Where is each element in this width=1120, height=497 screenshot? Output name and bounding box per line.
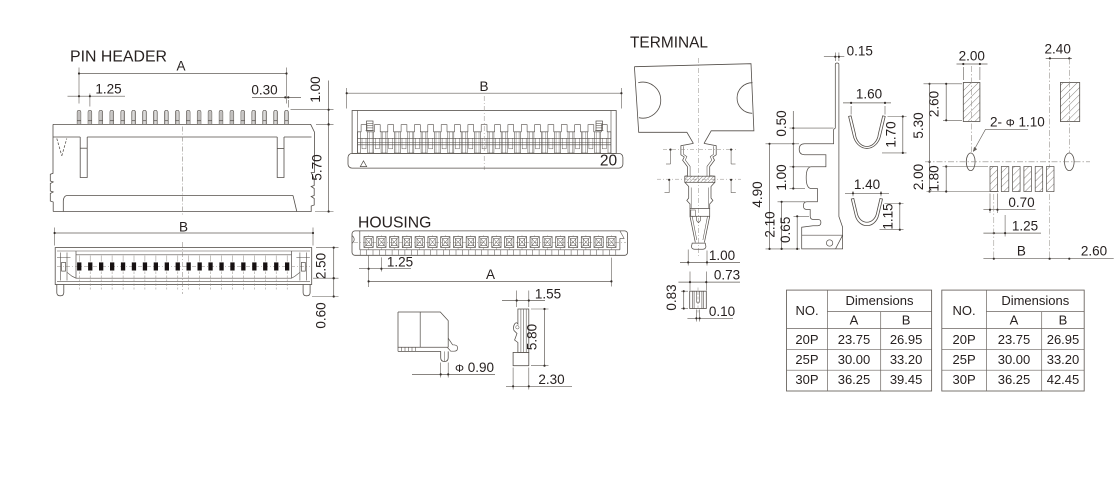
- svg-text:5.30: 5.30: [911, 112, 926, 138]
- svg-text:2.40: 2.40: [1045, 42, 1071, 57]
- svg-text:Dimensions: Dimensions: [846, 293, 914, 308]
- svg-text:HOUSING: HOUSING: [358, 215, 431, 232]
- svg-text:1.25: 1.25: [387, 255, 413, 270]
- svg-text:1.80: 1.80: [926, 165, 941, 191]
- svg-text:25P: 25P: [953, 352, 976, 367]
- svg-text:1.00: 1.00: [709, 248, 735, 263]
- svg-text:20P: 20P: [795, 332, 818, 347]
- svg-text:1.70: 1.70: [883, 121, 898, 147]
- svg-text:36.25: 36.25: [838, 372, 871, 387]
- svg-text:NO.: NO.: [953, 303, 976, 318]
- svg-text:23.75: 23.75: [838, 332, 871, 347]
- svg-text:2.60: 2.60: [1081, 244, 1107, 259]
- svg-text:1.25: 1.25: [1012, 219, 1038, 234]
- svg-text:2.00: 2.00: [911, 164, 926, 190]
- svg-text:30.00: 30.00: [998, 352, 1031, 367]
- svg-text:A: A: [850, 313, 859, 328]
- svg-text:1.60: 1.60: [856, 86, 882, 101]
- svg-text:2.50: 2.50: [314, 253, 329, 279]
- svg-text:NO.: NO.: [795, 303, 818, 318]
- svg-text:0.10: 0.10: [709, 304, 735, 319]
- svg-text:39.45: 39.45: [890, 372, 923, 387]
- svg-text:2.30: 2.30: [538, 372, 564, 387]
- svg-text:Φ 0.90: Φ 0.90: [455, 360, 494, 375]
- svg-text:2.10: 2.10: [763, 211, 778, 237]
- svg-text:B: B: [1059, 313, 1068, 328]
- svg-text:36.25: 36.25: [998, 372, 1031, 387]
- svg-text:5.70: 5.70: [310, 154, 325, 180]
- svg-text:26.95: 26.95: [890, 332, 923, 347]
- svg-text:B: B: [1017, 244, 1026, 259]
- svg-text:A: A: [176, 59, 185, 74]
- svg-text:1.25: 1.25: [95, 82, 121, 97]
- svg-text:0.83: 0.83: [664, 284, 679, 310]
- svg-text:B: B: [179, 220, 188, 235]
- svg-text:PIN HEADER: PIN HEADER: [70, 49, 167, 66]
- svg-text:0.15: 0.15: [847, 43, 873, 58]
- svg-text:33.20: 33.20: [1047, 352, 1080, 367]
- svg-text:B: B: [479, 79, 488, 94]
- svg-text:1.55: 1.55: [535, 287, 561, 302]
- svg-text:23.75: 23.75: [998, 332, 1031, 347]
- svg-text:A: A: [486, 267, 495, 282]
- svg-text:33.20: 33.20: [890, 352, 923, 367]
- svg-text:5.80: 5.80: [525, 324, 540, 350]
- svg-text:0.50: 0.50: [774, 110, 789, 136]
- svg-text:2- Φ 1.10: 2- Φ 1.10: [990, 115, 1045, 130]
- svg-text:2.60: 2.60: [926, 91, 941, 117]
- svg-text:TERMINAL: TERMINAL: [630, 35, 708, 52]
- svg-text:Dimensions: Dimensions: [1001, 293, 1069, 308]
- svg-text:4.90: 4.90: [750, 181, 765, 207]
- svg-text:1.40: 1.40: [854, 177, 880, 192]
- svg-text:30.00: 30.00: [838, 352, 871, 367]
- svg-text:0.30: 0.30: [251, 83, 277, 98]
- svg-text:1.15: 1.15: [880, 203, 895, 229]
- svg-text:1.00: 1.00: [774, 164, 789, 190]
- svg-text:0.65: 0.65: [778, 217, 793, 243]
- svg-text:30P: 30P: [953, 372, 976, 387]
- svg-text:20: 20: [600, 153, 618, 170]
- svg-text:B: B: [902, 313, 911, 328]
- svg-text:26.95: 26.95: [1047, 332, 1080, 347]
- svg-text:0.70: 0.70: [1008, 195, 1034, 210]
- svg-text:0.73: 0.73: [714, 268, 740, 283]
- svg-text:2.00: 2.00: [959, 49, 985, 64]
- svg-text:25P: 25P: [795, 352, 818, 367]
- svg-text:30P: 30P: [795, 372, 818, 387]
- svg-text:0.60: 0.60: [314, 302, 329, 328]
- svg-text:1.00: 1.00: [308, 76, 323, 102]
- svg-text:42.45: 42.45: [1047, 372, 1080, 387]
- svg-text:A: A: [1010, 313, 1019, 328]
- svg-text:20P: 20P: [953, 332, 976, 347]
